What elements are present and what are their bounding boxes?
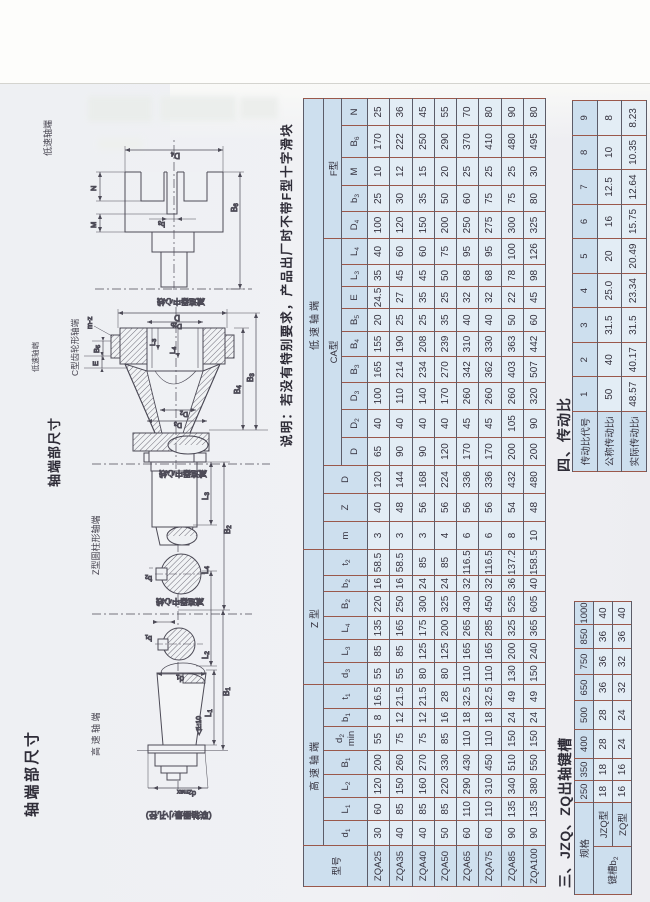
- svg-text:（联轴器最小孔径）: （联轴器最小孔径）: [140, 810, 217, 820]
- svg-text:M: M: [89, 222, 98, 228]
- svg-text:减速器中心线: 减速器中心线: [156, 597, 204, 607]
- svg-text:◁1:10: ◁1:10: [196, 716, 203, 735]
- svg-text:D: D: [174, 313, 180, 322]
- svg-text:D2b: D2b: [171, 321, 182, 329]
- svg-text:b3: b3: [158, 219, 165, 227]
- svg-text:B6: B6: [230, 203, 240, 212]
- svg-text:D4: D4: [170, 150, 180, 160]
- svg-text:b2: b2: [145, 573, 152, 581]
- svg-text:B3: B3: [246, 373, 256, 382]
- svg-text:减速器中心线: 减速器中心线: [157, 297, 205, 307]
- svg-text:减速器中心线: 减速器中心线: [159, 469, 207, 479]
- svg-text:m-z: m-z: [85, 316, 94, 329]
- svg-text:L4: L4: [201, 566, 211, 574]
- svg-text:E: E: [91, 361, 100, 366]
- svg-text:d2max: d2max: [177, 788, 196, 798]
- svg-text:B4: B4: [233, 385, 243, 394]
- svg-text:B2: B2: [223, 525, 233, 534]
- svg-text:N: N: [89, 186, 98, 191]
- svg-text:B5: B5: [92, 345, 102, 353]
- svg-text:L2: L2: [201, 651, 211, 659]
- svg-text:D3: D3: [174, 420, 182, 428]
- svg-text:B1: B1: [222, 687, 232, 696]
- svg-text:L1: L1: [204, 709, 214, 717]
- svg-text:b1: b1: [145, 633, 152, 641]
- svg-text:L3: L3: [201, 492, 211, 500]
- svg-text:D2: D2: [180, 409, 188, 417]
